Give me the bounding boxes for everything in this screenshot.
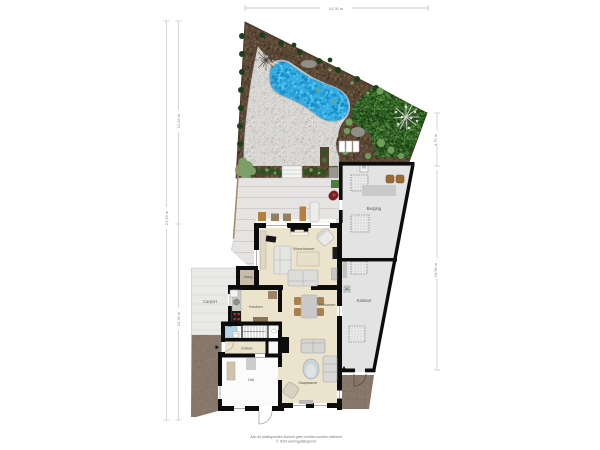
- svg-text:14,30 m: 14,30 m: [329, 6, 344, 11]
- svg-text:21,59 m: 21,59 m: [164, 210, 169, 225]
- svg-text:Keuken: Keuken: [249, 304, 263, 309]
- svg-text:© 2024 woningplattegrond: © 2024 woningplattegrond: [276, 440, 316, 444]
- svg-text:Slaapkamer: Slaapkamer: [298, 381, 318, 385]
- svg-text:Woonkamer: Woonkamer: [293, 246, 315, 251]
- svg-text:Eetkamer: Eetkamer: [318, 302, 336, 307]
- svg-text:4,75 m: 4,75 m: [433, 133, 438, 146]
- svg-text:Kantoor: Kantoor: [357, 298, 372, 303]
- svg-text:15,36 m: 15,36 m: [176, 311, 181, 326]
- svg-text:Gang: Gang: [244, 275, 253, 279]
- svg-text:Entree: Entree: [241, 347, 252, 351]
- svg-text:12,93 m: 12,93 m: [176, 113, 181, 128]
- svg-text:Hal: Hal: [248, 378, 254, 382]
- svg-text:18,96 m: 18,96 m: [433, 262, 438, 277]
- svg-text:Carport: Carport: [203, 299, 218, 304]
- svg-text:Aan de plattegronden kunnen ge: Aan de plattegronden kunnen geen rechten…: [250, 435, 341, 439]
- svg-text:Berging: Berging: [367, 206, 382, 211]
